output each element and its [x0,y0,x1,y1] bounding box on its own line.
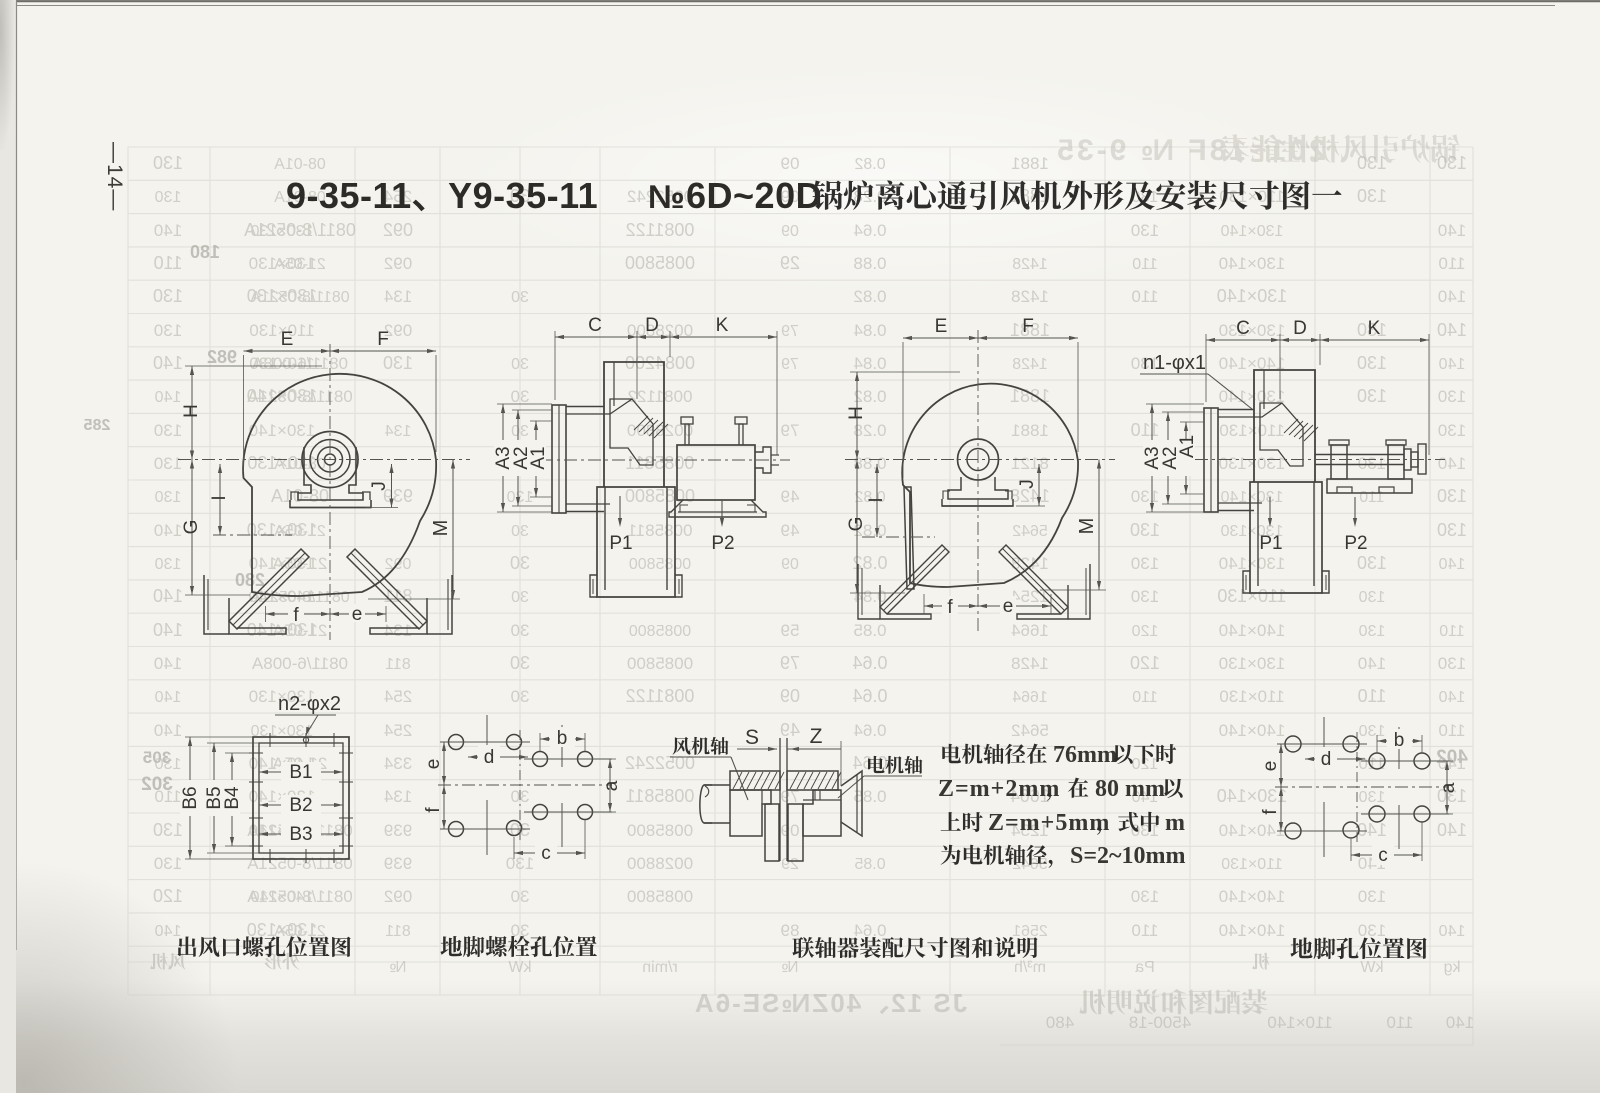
svg-text:130: 130 [1359,623,1386,640]
svg-text:130: 130 [1358,921,1386,940]
svg-text:130: 130 [1131,554,1159,573]
svg-text:n1-φx1: n1-φx1 [1143,352,1206,374]
svg-text:130: 130 [154,854,182,873]
svg-text:130: 130 [1357,386,1387,406]
svg-text:0811/8-0521A: 0811/8-0521A [244,220,356,240]
svg-text:1881: 1881 [1011,154,1049,173]
svg-text:F: F [377,329,389,350]
svg-text:1881: 1881 [1011,421,1049,440]
svg-text:0.85: 0.85 [853,621,886,640]
svg-text:140: 140 [154,721,182,740]
svg-text:M: M [1076,518,1098,535]
svg-text:0811/8-0521A: 0811/8-0521A [247,887,353,906]
svg-text:f: f [1260,809,1281,815]
svg-text:092: 092 [383,220,413,240]
svg-text:140: 140 [1446,1013,1474,1032]
svg-text:30: 30 [511,423,529,440]
svg-text:0052242: 0052242 [625,753,695,773]
svg-text:09: 09 [781,556,799,573]
svg-text:130: 130 [1357,553,1387,573]
svg-text:49: 49 [781,521,800,540]
svg-text:B4: B4 [222,786,243,810]
svg-text:110: 110 [1438,721,1465,740]
svg-text:140: 140 [153,620,183,640]
svg-text:b: b [557,728,568,749]
svg-text:130×130: 130×130 [1219,321,1286,340]
svg-text:B6: B6 [180,786,201,809]
svg-text:D: D [1293,318,1307,339]
svg-text:110×130: 110×130 [1219,687,1284,706]
svg-text:0.84: 0.84 [853,321,886,340]
svg-text:e: e [423,759,444,770]
svg-text:134: 134 [384,621,412,640]
svg-text:e: e [1260,761,1281,772]
svg-text:130: 130 [1357,186,1387,206]
svg-text:G: G [846,517,867,532]
svg-text:110×130: 110×130 [1219,421,1284,440]
svg-text:P1: P1 [1259,533,1282,554]
svg-text:130: 130 [1438,387,1466,406]
svg-text:e: e [1003,596,1014,617]
svg-text:254: 254 [384,721,412,740]
svg-text:130: 130 [153,286,183,306]
svg-text:134: 134 [385,423,412,440]
svg-text:140: 140 [154,521,182,540]
svg-text:№: № [781,959,798,976]
svg-text:140×140: 140×140 [1219,621,1286,640]
svg-text:4500-18: 4500-18 [1129,1013,1191,1032]
svg-text:0085800: 0085800 [625,486,695,506]
svg-text:1664: 1664 [1011,621,1049,640]
svg-text:120: 120 [1132,623,1159,640]
svg-text:254: 254 [384,687,412,706]
svg-text:79: 79 [781,323,799,340]
svg-text:140: 140 [1437,820,1467,840]
svg-text:140: 140 [1438,287,1466,306]
svg-text:30: 30 [511,887,530,906]
svg-text:29: 29 [781,856,799,873]
svg-text:n2-φx2: n2-φx2 [278,693,341,715]
svg-text:0085800: 0085800 [625,253,695,273]
svg-text:30: 30 [511,621,530,640]
svg-text:F: F [1022,316,1034,337]
svg-text:K: K [716,315,729,336]
svg-text:1428: 1428 [1012,256,1048,273]
svg-text:30: 30 [511,387,530,406]
svg-text:811: 811 [385,923,411,940]
svg-text:110: 110 [1359,489,1385,506]
svg-text:140: 140 [1439,356,1466,373]
svg-text:120: 120 [1130,653,1160,673]
svg-text:130: 130 [506,854,534,873]
svg-text:21-05A: 21-05A [272,621,327,640]
svg-text:130: 130 [1358,454,1386,473]
svg-text:E: E [281,329,294,350]
svg-text:305: 305 [143,748,171,767]
svg-text:J: J [369,481,390,491]
svg-text:130: 130 [1358,887,1386,906]
svg-text:30: 30 [510,653,530,673]
svg-text:0085800: 0085800 [627,654,693,673]
svg-text:140×140: 140×140 [1219,821,1286,840]
svg-text:80 mm: 80 mm [1095,776,1165,802]
svg-text:110×140: 110×140 [1267,1013,1332,1032]
svg-text:110: 110 [1131,287,1158,306]
svg-text:f: f [293,605,299,626]
svg-text:140: 140 [154,221,182,240]
svg-text:1428: 1428 [1012,356,1048,373]
svg-text:130×140: 130×140 [1219,554,1286,573]
svg-text:49: 49 [781,487,800,506]
svg-text:130×140: 130×140 [1217,286,1288,306]
svg-text:130: 130 [1131,487,1159,506]
svg-text:140: 140 [1438,221,1466,240]
svg-text:0.28: 0.28 [853,421,886,440]
svg-text:0.64: 0.64 [853,921,886,940]
svg-text:285: 285 [84,417,111,434]
svg-text:J: J [1017,479,1038,489]
svg-text:140: 140 [155,689,182,706]
svg-text:130: 130 [1437,520,1467,540]
svg-text:140: 140 [1439,556,1466,573]
svg-text:0085811: 0085811 [626,453,695,473]
svg-text:130: 130 [154,321,182,340]
svg-text:kW: kW [1360,959,1384,976]
svg-text:0811/6-008A: 0811/6-008A [251,654,348,673]
svg-text:kW: kW [508,959,532,976]
svg-text:092: 092 [384,887,412,906]
svg-text:09: 09 [781,223,799,240]
svg-text:08-01A: 08-01A [274,156,326,173]
svg-text:0.84: 0.84 [853,354,886,373]
svg-text:130: 130 [1131,221,1159,240]
svg-text:140: 140 [1358,654,1386,673]
svg-text:140: 140 [155,923,182,940]
svg-text:1428: 1428 [1011,654,1049,673]
svg-text:№: № [389,959,406,976]
svg-text:0.64: 0.64 [852,653,887,673]
svg-text:130: 130 [153,820,183,840]
svg-text:30: 30 [511,356,529,373]
svg-text:79: 79 [780,653,800,673]
svg-text:D: D [645,315,659,336]
svg-text:302: 302 [141,774,173,795]
svg-text:H: H [181,404,202,418]
svg-text:110: 110 [1132,689,1158,706]
svg-text:K: K [1368,318,1381,339]
svg-text:0085811: 0085811 [626,786,695,806]
svg-text:982: 982 [207,347,237,367]
svg-text:c: c [541,843,551,864]
svg-text:140×140: 140×140 [1219,887,1286,906]
svg-text:110×130: 110×130 [1217,586,1286,606]
svg-text:0028800: 0028800 [627,854,693,873]
svg-text:110×130: 110×130 [1221,856,1283,873]
svg-text:130: 130 [155,556,182,573]
svg-text:110: 110 [1439,623,1465,640]
svg-text:0.64: 0.64 [852,686,887,706]
svg-text:0081122: 0081122 [626,686,695,706]
svg-text:130: 130 [153,153,183,173]
svg-text:130×140: 130×140 [1221,223,1284,240]
svg-text:0.82: 0.82 [853,387,886,406]
svg-text:130: 130 [383,353,413,373]
svg-text:140: 140 [153,586,183,606]
svg-text:0.85: 0.85 [854,856,885,873]
svg-text:C: C [588,315,602,336]
svg-text:0085800: 0085800 [629,623,691,640]
svg-text:I: I [866,497,887,502]
svg-text:f: f [423,807,444,813]
svg-text:130×130: 130×130 [1219,654,1286,673]
svg-text:P2: P2 [1344,533,1367,554]
svg-text:a: a [1438,782,1459,793]
svg-text:130: 130 [1438,654,1466,673]
svg-text:0.88: 0.88 [853,254,886,273]
svg-text:e: e [352,604,363,625]
svg-text:0085800: 0085800 [627,821,693,840]
svg-text:0.82: 0.82 [854,156,885,173]
svg-text:c: c [1378,845,1388,866]
svg-text:B1: B1 [289,762,312,783]
svg-text:49: 49 [780,720,800,740]
svg-text:110×130: 110×130 [1219,187,1284,206]
svg-text:b: b [1394,730,1405,751]
svg-text:280: 280 [235,570,265,590]
svg-text:130×140: 130×140 [1219,254,1286,273]
svg-text:—14—: —14— [103,142,126,211]
svg-text:№: № [648,178,685,215]
svg-text:130×130: 130×130 [1219,454,1286,473]
svg-text:08-01A: 08-01A [271,486,329,506]
svg-text:G: G [181,520,202,535]
svg-text:H: H [846,406,867,420]
svg-text:130: 130 [1359,589,1386,606]
svg-text:5642: 5642 [1011,721,1049,740]
svg-text:120: 120 [153,886,183,906]
svg-text:M: M [430,520,452,537]
svg-text:8121: 8121 [1011,454,1049,473]
svg-text:A1: A1 [528,446,549,469]
svg-text:140: 140 [155,389,182,406]
svg-text:79: 79 [781,356,799,373]
svg-text:0.82: 0.82 [853,287,886,306]
svg-text:140: 140 [1438,454,1466,473]
svg-text:130: 130 [1437,486,1467,506]
svg-text:130: 130 [1131,587,1159,606]
svg-text:334: 334 [384,754,412,773]
svg-text:S=2~10mm: S=2~10mm [1070,843,1186,869]
svg-text:092: 092 [384,254,412,273]
svg-text:30: 30 [511,523,529,540]
svg-text:30: 30 [511,589,529,606]
svg-text:0811/8-0521A: 0811/8-0521A [250,289,350,306]
svg-text:P1: P1 [609,533,632,554]
svg-text:811: 811 [385,656,411,673]
svg-text:110: 110 [1131,420,1160,440]
svg-text:130: 130 [1357,353,1387,373]
svg-text:JS 12、40Z№SE-6A: JS 12、40Z№SE-6A [693,988,967,1018]
svg-text:134: 134 [384,787,412,806]
svg-text:130: 130 [1130,520,1160,540]
svg-text:0.64: 0.64 [853,221,886,240]
svg-text:480: 480 [1046,1013,1074,1032]
svg-text:130: 130 [155,189,182,206]
svg-text:C: C [1236,318,1250,339]
svg-text:130: 130 [1357,153,1387,173]
svg-text:0085800: 0085800 [627,887,693,906]
svg-text:0811/6-008A: 0811/6-008A [251,354,348,373]
svg-text:0.85: 0.85 [853,787,886,806]
svg-text:939: 939 [384,854,412,873]
svg-text:0811/8-0521A: 0811/8-0521A [247,854,353,873]
svg-text:6D~20D: 6D~20D [686,175,822,216]
svg-text:S: S [745,726,759,749]
svg-text:kg: kg [1444,959,1461,976]
svg-text:09: 09 [781,821,800,840]
svg-text:110: 110 [1358,686,1387,706]
svg-text:09: 09 [780,686,800,706]
svg-text:402: 402 [1436,747,1468,768]
svg-text:21-05A: 21-05A [274,256,326,273]
svg-text:E: E [935,316,948,337]
svg-text:30: 30 [510,553,530,573]
svg-text:76mm: 76mm [1053,742,1117,768]
svg-text:130×140: 130×140 [1217,786,1288,806]
svg-text:I: I [209,495,230,500]
svg-text:130: 130 [1359,789,1386,806]
svg-text:d: d [484,747,495,768]
svg-text:140: 140 [153,353,183,373]
svg-text:B3: B3 [289,824,312,845]
svg-text:130: 130 [1131,887,1159,906]
svg-text:140×140: 140×140 [1219,721,1286,740]
svg-text:0811/8-0521A: 0811/8-0521A [247,387,353,406]
svg-text:0.64: 0.64 [853,721,886,740]
svg-text:110: 110 [1358,754,1385,773]
svg-text:130: 130 [154,454,182,473]
svg-text:939: 939 [384,821,412,840]
svg-text:110: 110 [1438,254,1465,273]
svg-text:Pa: Pa [1135,959,1155,976]
svg-text:Z=m+5mm: Z=m+5mm [988,810,1110,836]
svg-text:A1: A1 [1177,435,1198,458]
svg-text:2561: 2561 [1012,923,1048,940]
svg-text:180: 180 [190,242,220,262]
svg-text:59: 59 [781,621,800,640]
svg-text:130×140: 130×140 [249,421,316,440]
svg-text:89: 89 [781,921,800,940]
svg-text:140: 140 [1357,820,1387,840]
svg-text:r/min: r/min [642,959,678,976]
svg-text:130: 130 [1438,421,1466,440]
svg-text:140: 140 [1439,689,1466,706]
svg-text:21-05A: 21-05A [274,923,326,940]
svg-text:30: 30 [511,289,529,306]
svg-text:140: 140 [1439,923,1466,940]
svg-text:30: 30 [511,687,530,706]
svg-text:Z: Z [810,725,823,748]
svg-text:0085811: 0085811 [628,521,693,540]
svg-text:5642: 5642 [1012,523,1048,540]
svg-text:134: 134 [384,287,412,306]
svg-text:09: 09 [781,154,800,173]
svg-text:140: 140 [1437,320,1467,340]
svg-text:130: 130 [155,489,182,506]
svg-text:m: m [1165,810,1185,836]
svg-text:a: a [601,780,622,791]
svg-text:140×140: 140×140 [1219,921,1286,940]
svg-text:0081122: 0081122 [626,220,695,240]
svg-text:110: 110 [1131,921,1158,940]
svg-text:110: 110 [1386,1013,1413,1032]
svg-text:0.88: 0.88 [853,454,886,473]
svg-text:0811/8-0521A: 0811/8-0521A [250,589,350,606]
svg-text:130: 130 [1359,723,1386,740]
svg-text:29: 29 [780,253,800,273]
svg-text:f: f [947,597,953,618]
svg-text:m³/h: m³/h [1014,959,1046,976]
svg-text:110: 110 [1132,256,1158,273]
svg-text:P2: P2 [711,533,734,554]
svg-text:9-35-11、Y9-35-11: 9-35-11、Y9-35-11 [286,175,598,216]
svg-text:B2: B2 [289,795,312,816]
svg-text:130: 130 [154,421,182,440]
svg-text:21-05A: 21-05A [274,523,326,540]
svg-text:140: 140 [154,654,182,673]
svg-text:1428: 1428 [1011,287,1049,306]
svg-text:1664: 1664 [1012,689,1048,706]
svg-text:d: d [1321,749,1332,770]
svg-text:0085800: 0085800 [629,556,691,573]
svg-text:0084200: 0084200 [625,353,695,373]
svg-text:Z=m+2mm: Z=m+2mm [938,776,1060,802]
svg-text:110: 110 [154,253,183,273]
svg-text:79: 79 [781,421,800,440]
